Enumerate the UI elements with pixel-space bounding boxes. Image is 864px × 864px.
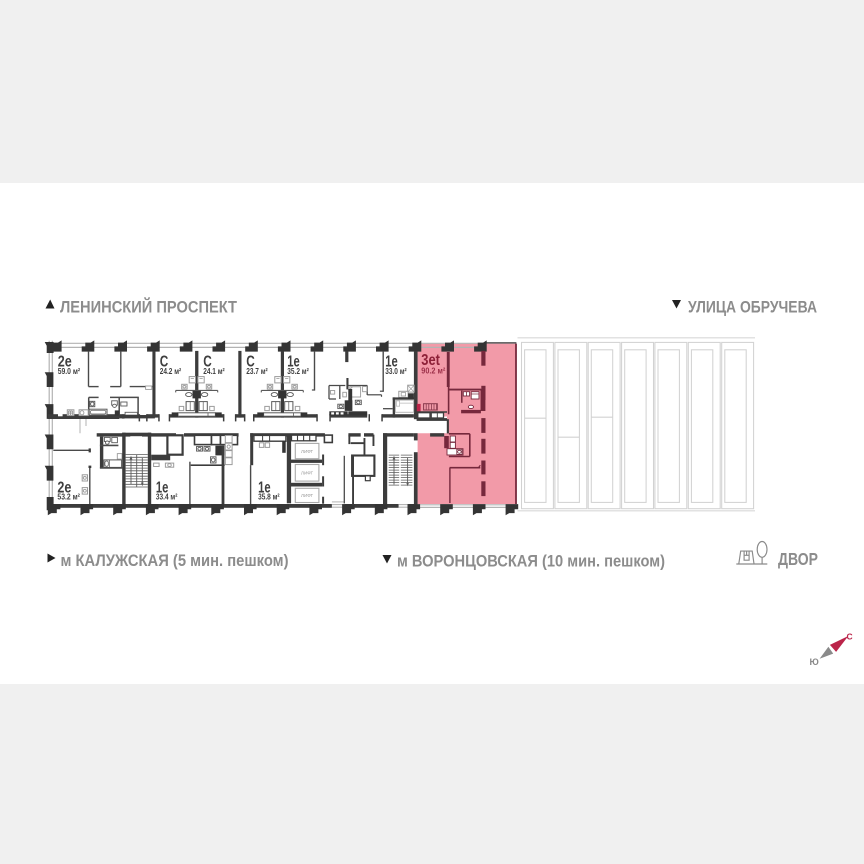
svg-text:ДВОР: ДВОР [778, 549, 818, 569]
svg-text:УЛИЦА ОБРУЧЕВА: УЛИЦА ОБРУЧЕВА [688, 298, 817, 317]
svg-text:ЛЕНИНСКИЙ ПРОСПЕКТ: ЛЕНИНСКИЙ ПРОСПЕКТ [60, 298, 238, 317]
svg-text:м КАЛУЖСКАЯ (5 мин. пешком): м КАЛУЖСКАЯ (5 мин. пешком) [61, 551, 289, 570]
svg-text:24.2 м²: 24.2 м² [160, 367, 182, 376]
svg-text:33.4 м²: 33.4 м² [156, 493, 178, 502]
svg-text:м ВОРОНЦОВСКАЯ (10 мин. пешко: м ВОРОНЦОВСКАЯ (10 мин. пешком) [397, 552, 665, 571]
svg-text:33.0 м²: 33.0 м² [385, 367, 407, 376]
svg-text:35.2 м²: 35.2 м² [287, 367, 309, 376]
svg-text:ЛИФТ: ЛИФТ [301, 471, 313, 476]
svg-text:53.2 м²: 53.2 м² [57, 493, 80, 502]
svg-text:35.8 м²: 35.8 м² [258, 493, 280, 502]
svg-text:Ю: Ю [810, 657, 819, 667]
svg-text:ЛИФТ: ЛИФТ [301, 449, 313, 454]
svg-text:ЛИФТ: ЛИФТ [301, 493, 313, 498]
svg-text:23.7 м²: 23.7 м² [246, 367, 268, 376]
svg-text:24.1 м²: 24.1 м² [203, 367, 225, 376]
svg-text:59.0 м²: 59.0 м² [58, 367, 81, 376]
svg-text:С: С [847, 632, 853, 642]
svg-text:90.2 м²: 90.2 м² [421, 367, 445, 376]
